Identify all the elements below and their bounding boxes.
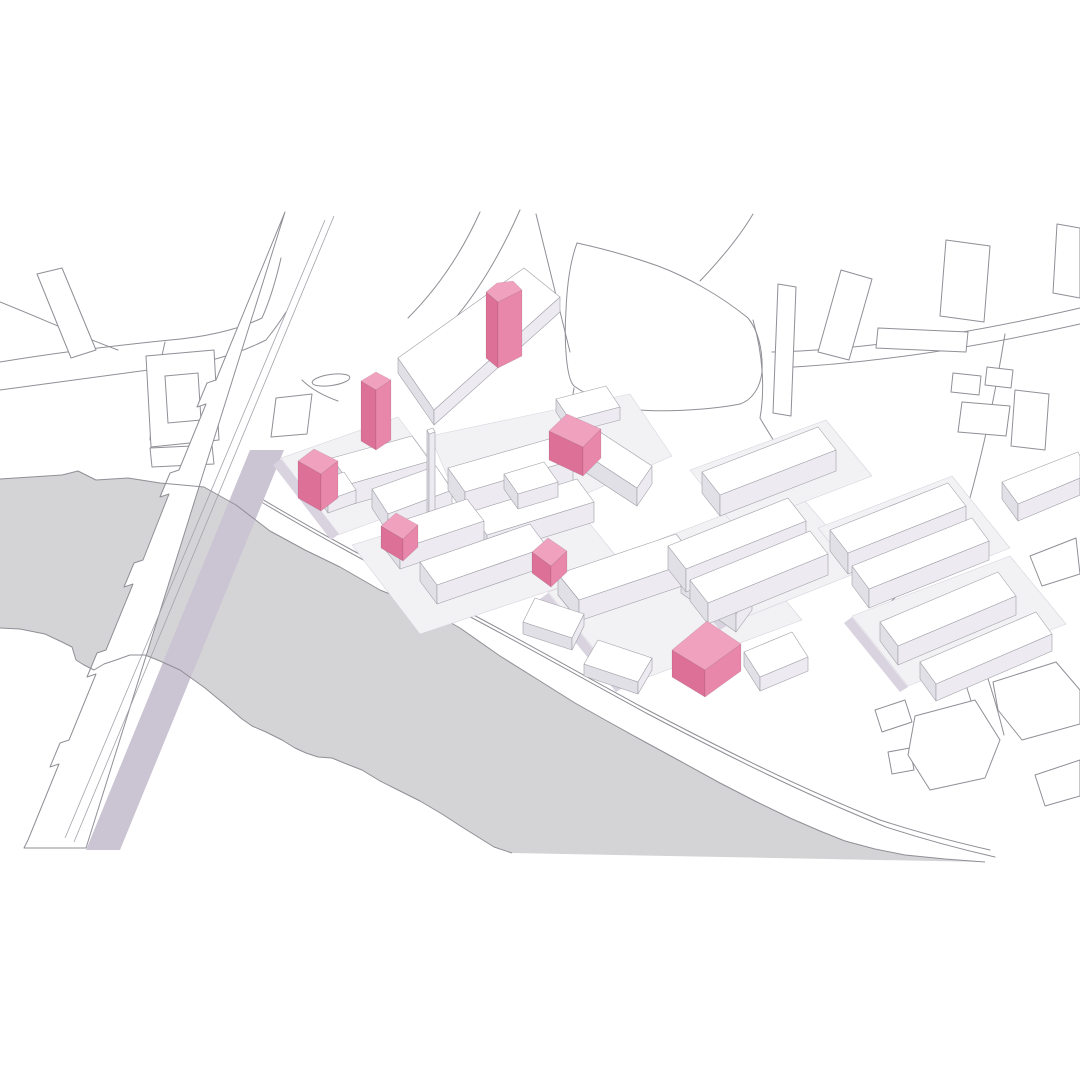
highlighted-building-2-side (376, 380, 391, 450)
site-diagram-page (0, 0, 1080, 1080)
site-diagram-svg (0, 0, 1080, 1080)
white-building-side (429, 432, 435, 522)
flat-building-footprint (951, 373, 981, 395)
flat-building-footprint (958, 402, 1010, 436)
highlighted-building-1-side (486, 292, 498, 368)
flat-building-footprint (271, 394, 312, 437)
flat-building-footprint (985, 367, 1013, 388)
flat-building-footprint (876, 328, 968, 352)
white-building (427, 428, 435, 522)
highlighted-building-3 (298, 449, 338, 511)
highlighted-building-1 (486, 281, 522, 368)
flat-building-footprint (940, 240, 990, 322)
courtyard-outline (165, 373, 201, 423)
highlighted-building-1-side (498, 290, 522, 368)
flat-building-footprint (1011, 390, 1049, 450)
highlighted-building-2-side (361, 381, 376, 450)
flat-building-footprint (1053, 224, 1080, 298)
highlighted-building-2 (361, 372, 391, 450)
